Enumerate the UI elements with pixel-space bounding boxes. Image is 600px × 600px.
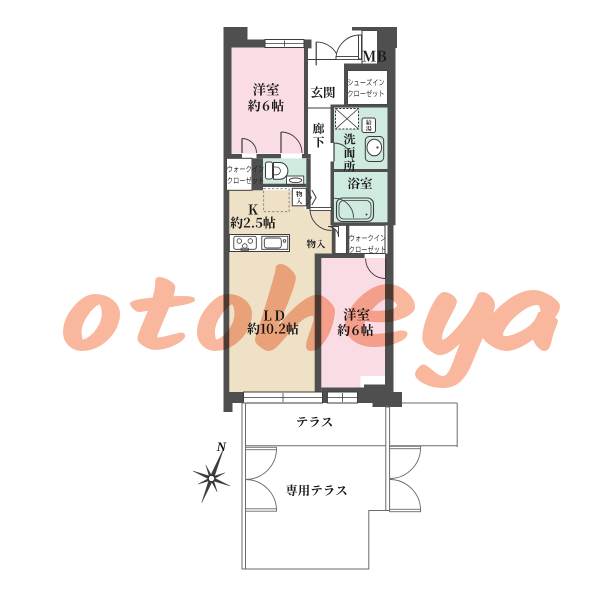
svg-text:N: N: [216, 439, 227, 454]
